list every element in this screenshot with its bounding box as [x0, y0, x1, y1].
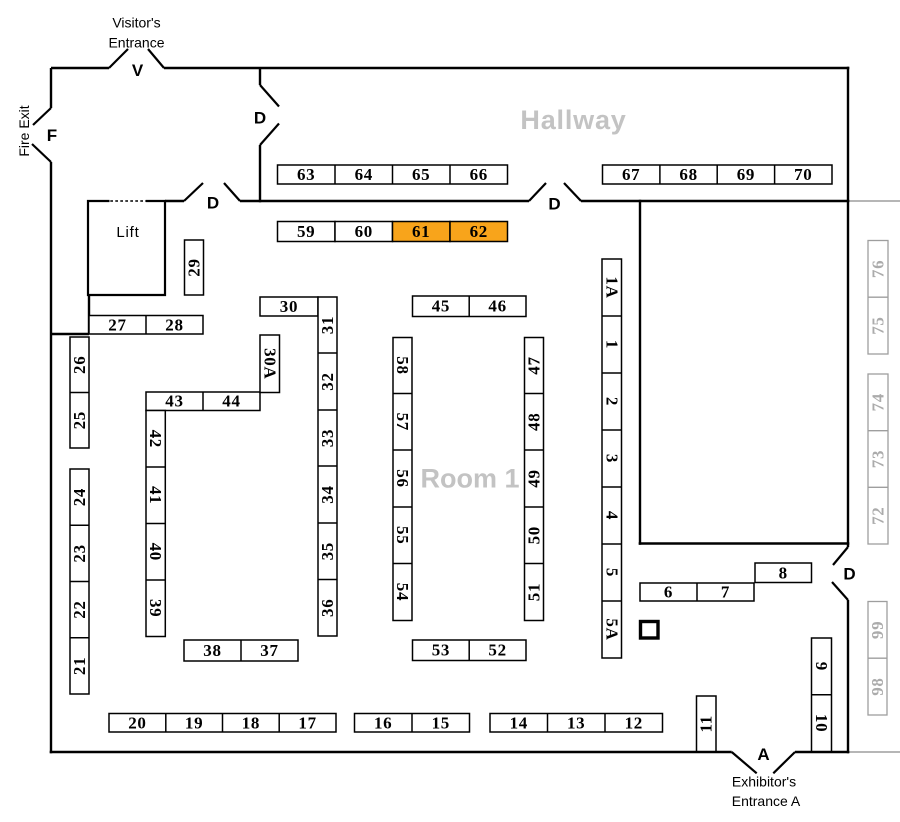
svg-text:2: 2	[602, 397, 621, 406]
svg-text:D: D	[254, 109, 266, 128]
svg-text:74: 74	[869, 393, 888, 411]
svg-text:32: 32	[318, 372, 337, 390]
svg-text:66: 66	[470, 165, 488, 184]
svg-text:18: 18	[242, 713, 260, 732]
svg-text:Visitor's: Visitor's	[112, 15, 160, 31]
svg-text:45: 45	[432, 297, 450, 316]
svg-text:8: 8	[779, 563, 788, 582]
svg-text:70: 70	[794, 165, 812, 184]
svg-text:20: 20	[128, 713, 146, 732]
svg-text:3: 3	[602, 454, 621, 463]
svg-text:30: 30	[280, 297, 298, 316]
svg-text:Room 1: Room 1	[420, 464, 519, 494]
svg-text:75: 75	[869, 316, 888, 334]
svg-text:V: V	[132, 61, 144, 80]
svg-text:38: 38	[203, 641, 221, 660]
svg-text:34: 34	[318, 485, 337, 503]
svg-text:Exhibitor's: Exhibitor's	[732, 774, 796, 790]
svg-text:63: 63	[297, 165, 315, 184]
svg-text:24: 24	[70, 488, 89, 506]
svg-text:4: 4	[602, 511, 621, 520]
svg-text:21: 21	[70, 657, 89, 675]
svg-text:42: 42	[146, 430, 165, 448]
svg-text:9: 9	[812, 662, 831, 671]
svg-text:15: 15	[432, 713, 450, 732]
svg-text:29: 29	[185, 258, 204, 276]
svg-text:23: 23	[70, 544, 89, 562]
svg-text:12: 12	[625, 713, 643, 732]
svg-text:48: 48	[525, 413, 544, 431]
svg-text:69: 69	[737, 165, 755, 184]
svg-text:73: 73	[869, 450, 888, 468]
svg-text:65: 65	[412, 165, 430, 184]
svg-text:Hallway: Hallway	[520, 105, 626, 135]
svg-text:35: 35	[318, 542, 337, 560]
svg-text:53: 53	[432, 641, 450, 660]
svg-text:50: 50	[525, 526, 544, 544]
svg-text:44: 44	[222, 392, 240, 411]
svg-text:54: 54	[393, 583, 412, 601]
svg-text:58: 58	[393, 356, 412, 374]
svg-text:A: A	[757, 745, 769, 764]
svg-text:1A: 1A	[602, 276, 621, 298]
svg-text:22: 22	[70, 600, 89, 618]
svg-text:Entrance: Entrance	[108, 35, 164, 51]
svg-text:33: 33	[318, 429, 337, 447]
svg-text:Lift: Lift	[116, 224, 139, 241]
svg-text:28: 28	[165, 315, 183, 334]
svg-text:7: 7	[721, 583, 730, 602]
svg-text:30A: 30A	[260, 348, 279, 379]
svg-text:27: 27	[108, 315, 126, 334]
svg-text:16: 16	[374, 713, 392, 732]
svg-text:17: 17	[298, 713, 316, 732]
svg-text:Entrance A: Entrance A	[732, 793, 801, 809]
svg-text:99: 99	[868, 621, 887, 639]
svg-text:98: 98	[868, 677, 887, 695]
svg-text:47: 47	[525, 356, 544, 374]
svg-text:25: 25	[70, 411, 89, 429]
svg-text:60: 60	[355, 222, 373, 241]
svg-text:10: 10	[812, 714, 831, 732]
svg-text:49: 49	[525, 469, 544, 487]
svg-text:43: 43	[165, 392, 183, 411]
svg-text:11: 11	[697, 715, 716, 732]
svg-text:61: 61	[412, 222, 430, 241]
svg-text:62: 62	[470, 222, 488, 241]
svg-text:56: 56	[393, 469, 412, 487]
svg-text:6: 6	[664, 583, 673, 602]
svg-text:5A: 5A	[602, 618, 621, 640]
svg-text:D: D	[207, 194, 219, 213]
svg-text:41: 41	[146, 486, 165, 504]
svg-text:D: D	[548, 195, 560, 214]
svg-text:68: 68	[679, 165, 697, 184]
svg-text:37: 37	[260, 641, 278, 660]
svg-text:57: 57	[393, 413, 412, 431]
svg-text:19: 19	[185, 713, 203, 732]
svg-text:13: 13	[567, 713, 585, 732]
svg-text:26: 26	[70, 356, 89, 374]
svg-text:5: 5	[602, 568, 621, 577]
svg-text:64: 64	[355, 165, 373, 184]
svg-text:40: 40	[146, 543, 165, 561]
svg-text:55: 55	[393, 526, 412, 544]
svg-text:67: 67	[622, 165, 640, 184]
svg-text:46: 46	[488, 297, 506, 316]
svg-text:14: 14	[510, 713, 528, 732]
svg-text:51: 51	[525, 583, 544, 601]
svg-text:72: 72	[869, 506, 888, 524]
svg-text:76: 76	[869, 260, 888, 278]
svg-text:F: F	[47, 126, 57, 145]
svg-text:Fire Exit: Fire Exit	[16, 105, 32, 156]
svg-text:59: 59	[297, 222, 315, 241]
svg-text:39: 39	[146, 599, 165, 617]
svg-text:1: 1	[602, 340, 621, 349]
svg-text:D: D	[843, 565, 855, 584]
svg-text:31: 31	[318, 316, 337, 334]
svg-text:52: 52	[488, 641, 506, 660]
svg-text:36: 36	[318, 599, 337, 617]
